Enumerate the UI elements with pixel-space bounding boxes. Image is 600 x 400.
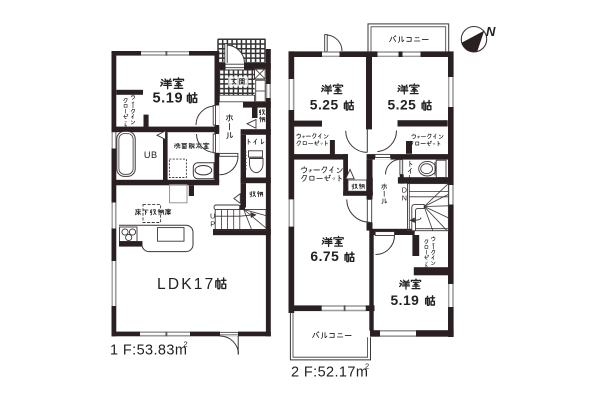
svg-text:LDK17: LDK17 — [157, 276, 215, 293]
svg-text:2: 2 — [184, 340, 188, 349]
svg-text:5.19: 5.19 — [153, 90, 184, 106]
svg-text:N: N — [486, 24, 496, 39]
svg-text:UB: UB — [144, 150, 158, 160]
svg-text:5.19: 5.19 — [391, 293, 420, 308]
svg-text:N: N — [402, 193, 407, 202]
svg-text:P: P — [210, 219, 215, 228]
svg-text:2 F:52.17m: 2 F:52.17m — [291, 365, 368, 381]
svg-text:1 F:53.83m: 1 F:53.83m — [110, 343, 187, 359]
svg-text:5.25: 5.25 — [310, 98, 339, 113]
svg-text:2: 2 — [365, 362, 369, 371]
svg-text:5.25: 5.25 — [388, 98, 417, 113]
svg-text:6.75: 6.75 — [310, 249, 339, 264]
